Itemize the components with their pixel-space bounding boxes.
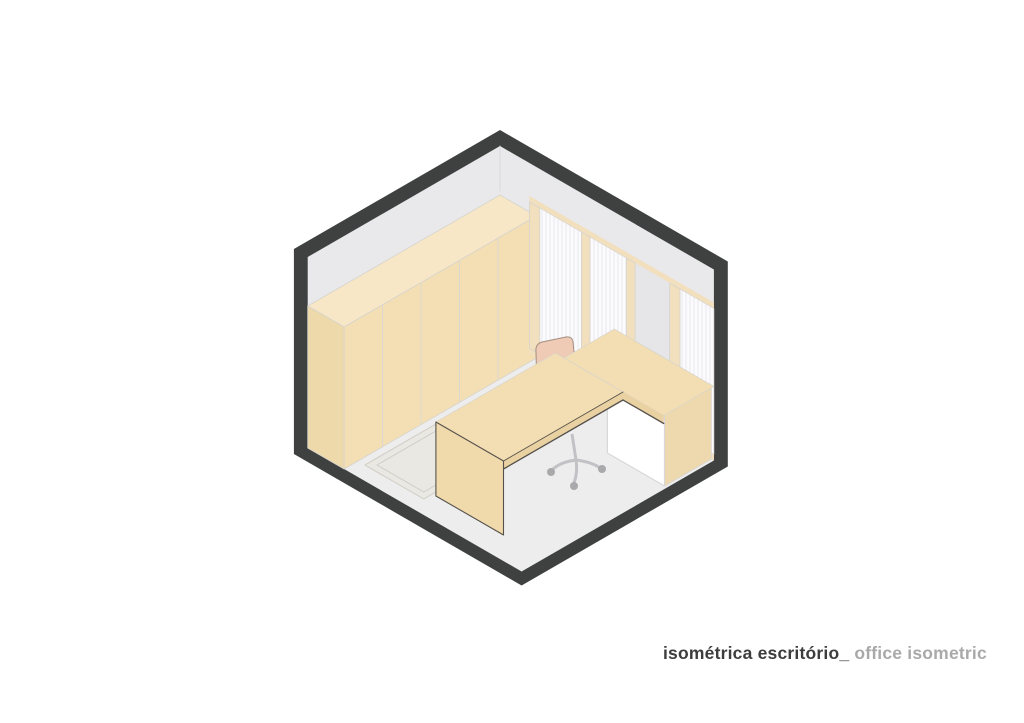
figure-caption: isométrica escritório_ office isometric [663, 643, 987, 664]
page: isométrica escritório_ office isometric [0, 0, 1024, 723]
office-isometric-drawing [0, 0, 1024, 723]
caption-primary: isométrica escritório_ [663, 643, 849, 663]
caption-secondary: office isometric [849, 643, 987, 663]
office-isometric-figure [0, 0, 1024, 723]
